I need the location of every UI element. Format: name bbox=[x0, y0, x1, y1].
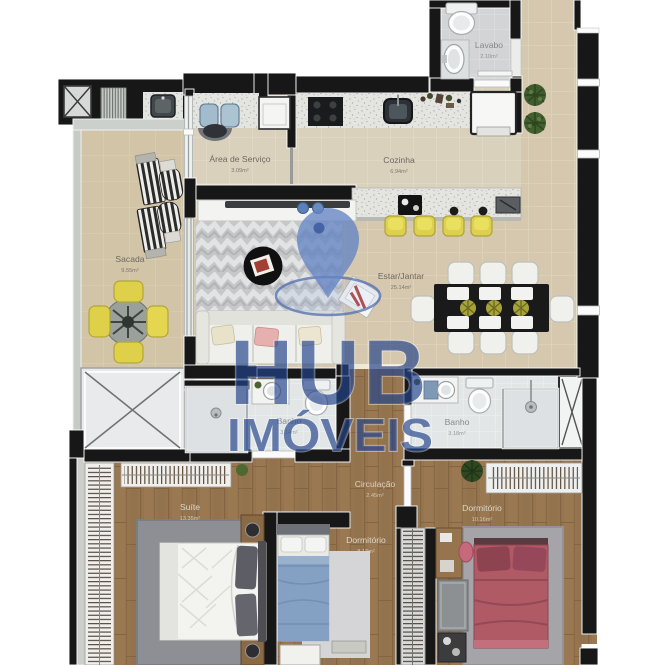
svg-text:10.16m²: 10.16m² bbox=[472, 517, 493, 523]
svg-text:Estar/Jantar: Estar/Jantar bbox=[378, 271, 424, 281]
svg-text:Dormitório: Dormitório bbox=[462, 503, 502, 513]
svg-text:13.35m²: 13.35m² bbox=[180, 516, 201, 522]
svg-text:2.45m²: 2.45m² bbox=[366, 493, 384, 499]
svg-text:Circulação: Circulação bbox=[355, 479, 396, 489]
svg-text:25.14m²: 25.14m² bbox=[391, 285, 412, 291]
svg-text:3.09m²: 3.09m² bbox=[231, 168, 249, 174]
svg-text:Dormitório: Dormitório bbox=[346, 535, 386, 545]
svg-text:IMÓVEIS: IMÓVEIS bbox=[227, 409, 433, 461]
svg-text:2.10m²: 2.10m² bbox=[480, 54, 498, 60]
svg-text:Banho: Banho bbox=[445, 417, 470, 427]
svg-text:Área de Serviço: Área de Serviço bbox=[209, 154, 270, 164]
svg-text:3.18m²: 3.18m² bbox=[448, 431, 466, 437]
svg-text:Sacada: Sacada bbox=[115, 254, 144, 264]
svg-text:6.94m²: 6.94m² bbox=[390, 169, 408, 175]
svg-text:9.55m²: 9.55m² bbox=[121, 268, 139, 274]
svg-text:Cozinha: Cozinha bbox=[383, 155, 415, 165]
svg-text:Suíte: Suíte bbox=[180, 502, 200, 512]
svg-text:Lavabo: Lavabo bbox=[475, 40, 503, 50]
svg-text:8.13m²: 8.13m² bbox=[357, 549, 375, 555]
